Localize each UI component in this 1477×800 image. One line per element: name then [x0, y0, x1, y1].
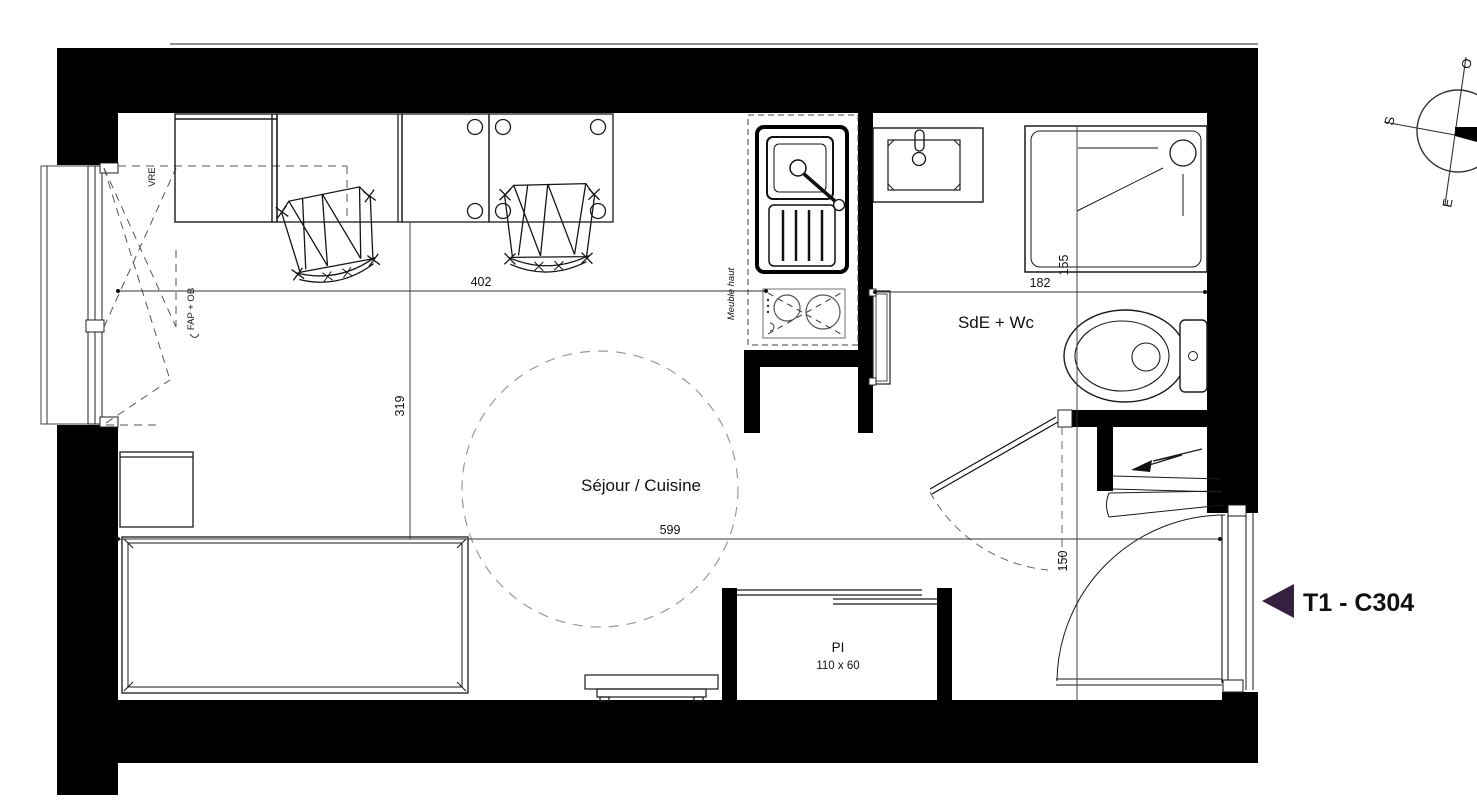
compass-east: E [1439, 197, 1455, 208]
washbasin [873, 128, 983, 202]
sink-drainer [769, 205, 835, 266]
compass-south: S [1381, 115, 1397, 126]
bench [585, 675, 718, 701]
note-fap: FAP + OB [186, 288, 197, 330]
desk-unit [277, 114, 402, 222]
unit-label: T1 - C304 [1303, 589, 1414, 617]
closet-sliding-doors [737, 590, 937, 604]
dim-155: 155 [1057, 255, 1071, 276]
room-label-living: Séjour / Cuisine [581, 476, 701, 495]
dim-150: 150 [1056, 551, 1070, 572]
entry-arrow-icon [1131, 449, 1202, 472]
compass-west: O [1458, 57, 1475, 70]
dim-182: 182 [1030, 276, 1051, 290]
kitchen-dashed-outline [748, 115, 858, 345]
note-vre: VRE [147, 167, 158, 187]
bathroom [869, 126, 1207, 570]
compass-rose: O S E [1381, 57, 1477, 208]
closet-size-label: 110 x 60 [816, 660, 859, 672]
table-left [402, 114, 489, 222]
bathroom-door [930, 410, 1072, 570]
unit-tag: T1 - C304 [1262, 584, 1414, 618]
compass-north-pointer [1455, 127, 1477, 142]
floor-plan-canvas: Séjour / Cuisine SdE + Wc PI 110 x 60 40… [0, 0, 1477, 800]
chair-icon [275, 185, 388, 289]
closet-label: PI [832, 640, 845, 655]
unit-arrow-icon [1262, 584, 1294, 618]
walls [57, 48, 1258, 795]
dimension-dots [116, 289, 1222, 541]
dim-402: 402 [471, 275, 492, 289]
window [41, 163, 118, 427]
dim-319: 319 [393, 396, 407, 417]
dim-599: 599 [660, 523, 681, 537]
note-meuble-haut: Meuble haut [726, 268, 737, 321]
bedside-table [120, 452, 193, 527]
floor-plan-drawing: Séjour / Cuisine SdE + Wc PI 110 x 60 40… [0, 0, 1477, 800]
toilet [1064, 310, 1207, 402]
sink-faucet [790, 160, 806, 176]
note-fap-bracket [190, 334, 199, 338]
shower [1025, 126, 1207, 272]
entry-door [1056, 505, 1253, 692]
table-right [489, 114, 613, 222]
bed [122, 537, 468, 693]
window-swing-dashes [104, 166, 347, 425]
shower-drain [1170, 140, 1196, 166]
kitchen-block [748, 115, 858, 345]
chair-icon [498, 182, 600, 273]
room-label-bathroom: SdE + Wc [958, 313, 1035, 332]
wardrobe [175, 114, 277, 222]
